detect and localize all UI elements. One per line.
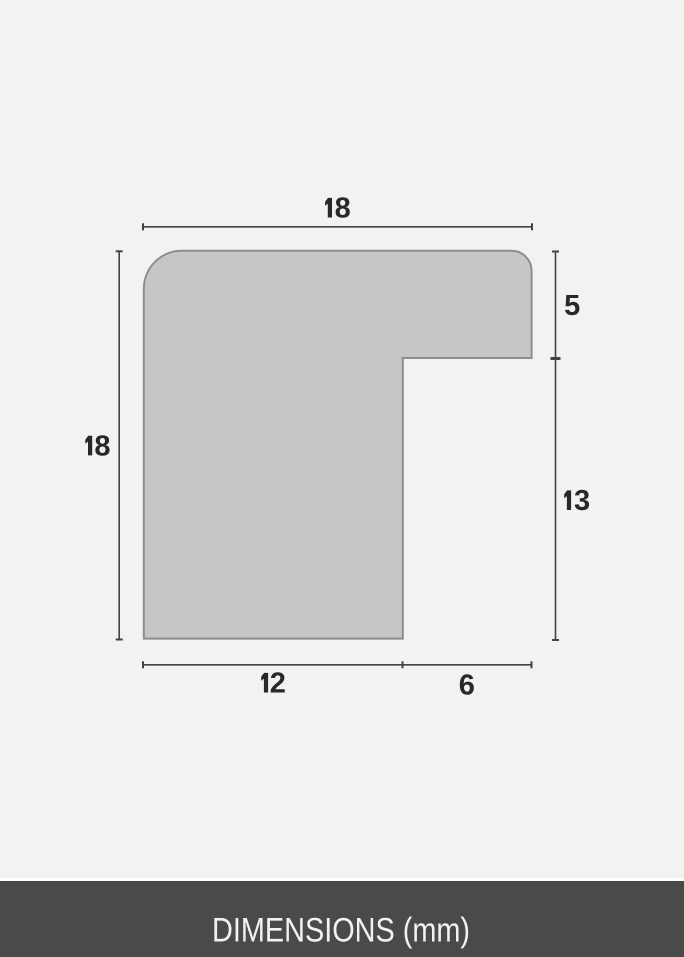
svg-text:3: 3 [574,485,590,517]
svg-text:2: 2 [270,668,286,700]
svg-text:8: 8 [94,430,110,462]
svg-text:8: 8 [335,193,351,225]
svg-text:DIMENSIONS (mm): DIMENSIONS (mm) [212,912,470,950]
svg-text:5: 5 [564,290,580,322]
svg-text:6: 6 [459,669,475,701]
